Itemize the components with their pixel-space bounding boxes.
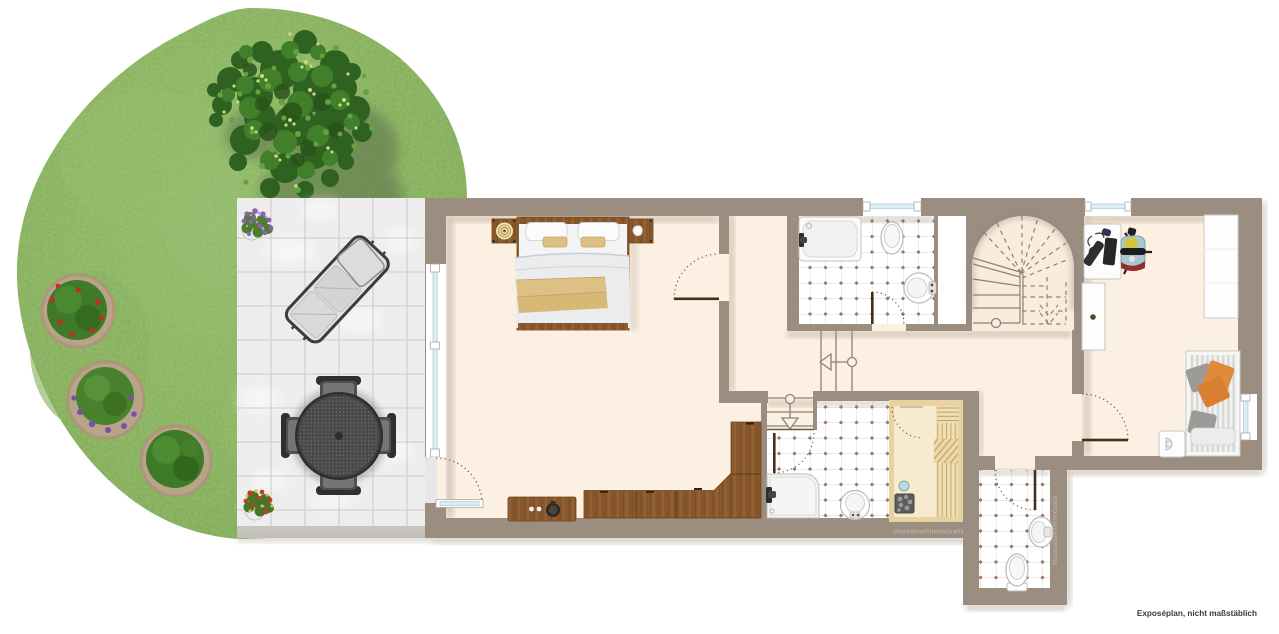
svg-text:Illustration©ImmoGrafik: Illustration©ImmoGrafik <box>894 529 964 536</box>
svg-text:Illustration©ImmoGrafik: Illustration©ImmoGrafik <box>1052 494 1059 564</box>
svg-text:Exposéplan, nicht maßstäblich: Exposéplan, nicht maßstäblich <box>1137 609 1257 618</box>
